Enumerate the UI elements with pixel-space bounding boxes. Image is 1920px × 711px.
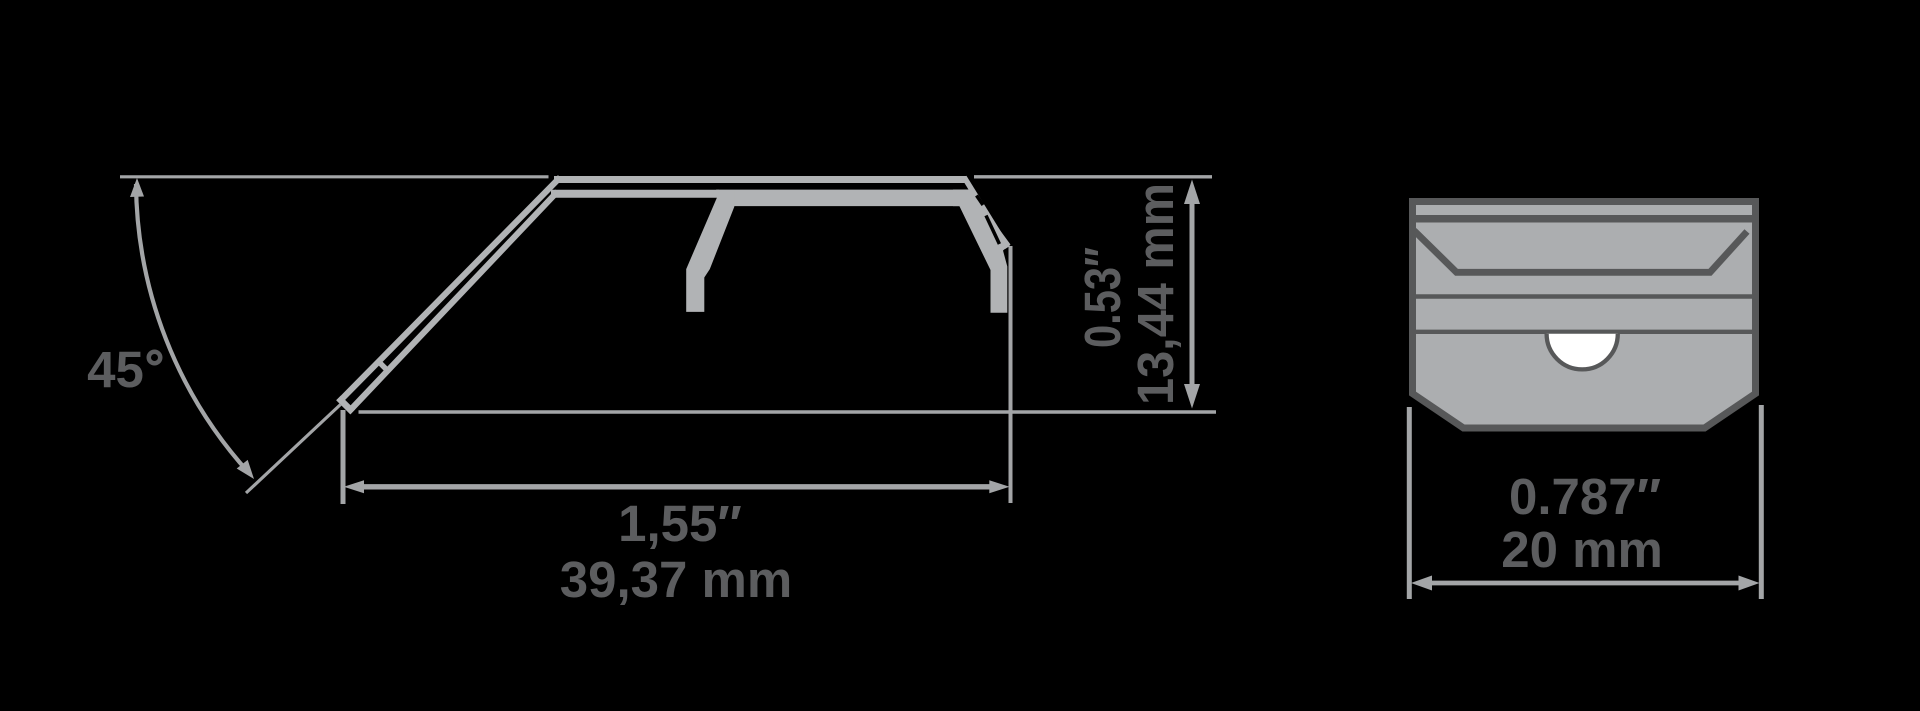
svg-text:1,55″: 1,55″: [618, 495, 742, 552]
svg-text:0.53″: 0.53″: [1074, 247, 1131, 348]
svg-text:20 mm: 20 mm: [1501, 521, 1663, 578]
svg-text:39,37 mm: 39,37 mm: [560, 551, 793, 608]
svg-text:0.787″: 0.787″: [1509, 468, 1661, 525]
svg-text:13,44 mm: 13,44 mm: [1127, 183, 1184, 405]
svg-text:45: 45: [87, 341, 144, 398]
